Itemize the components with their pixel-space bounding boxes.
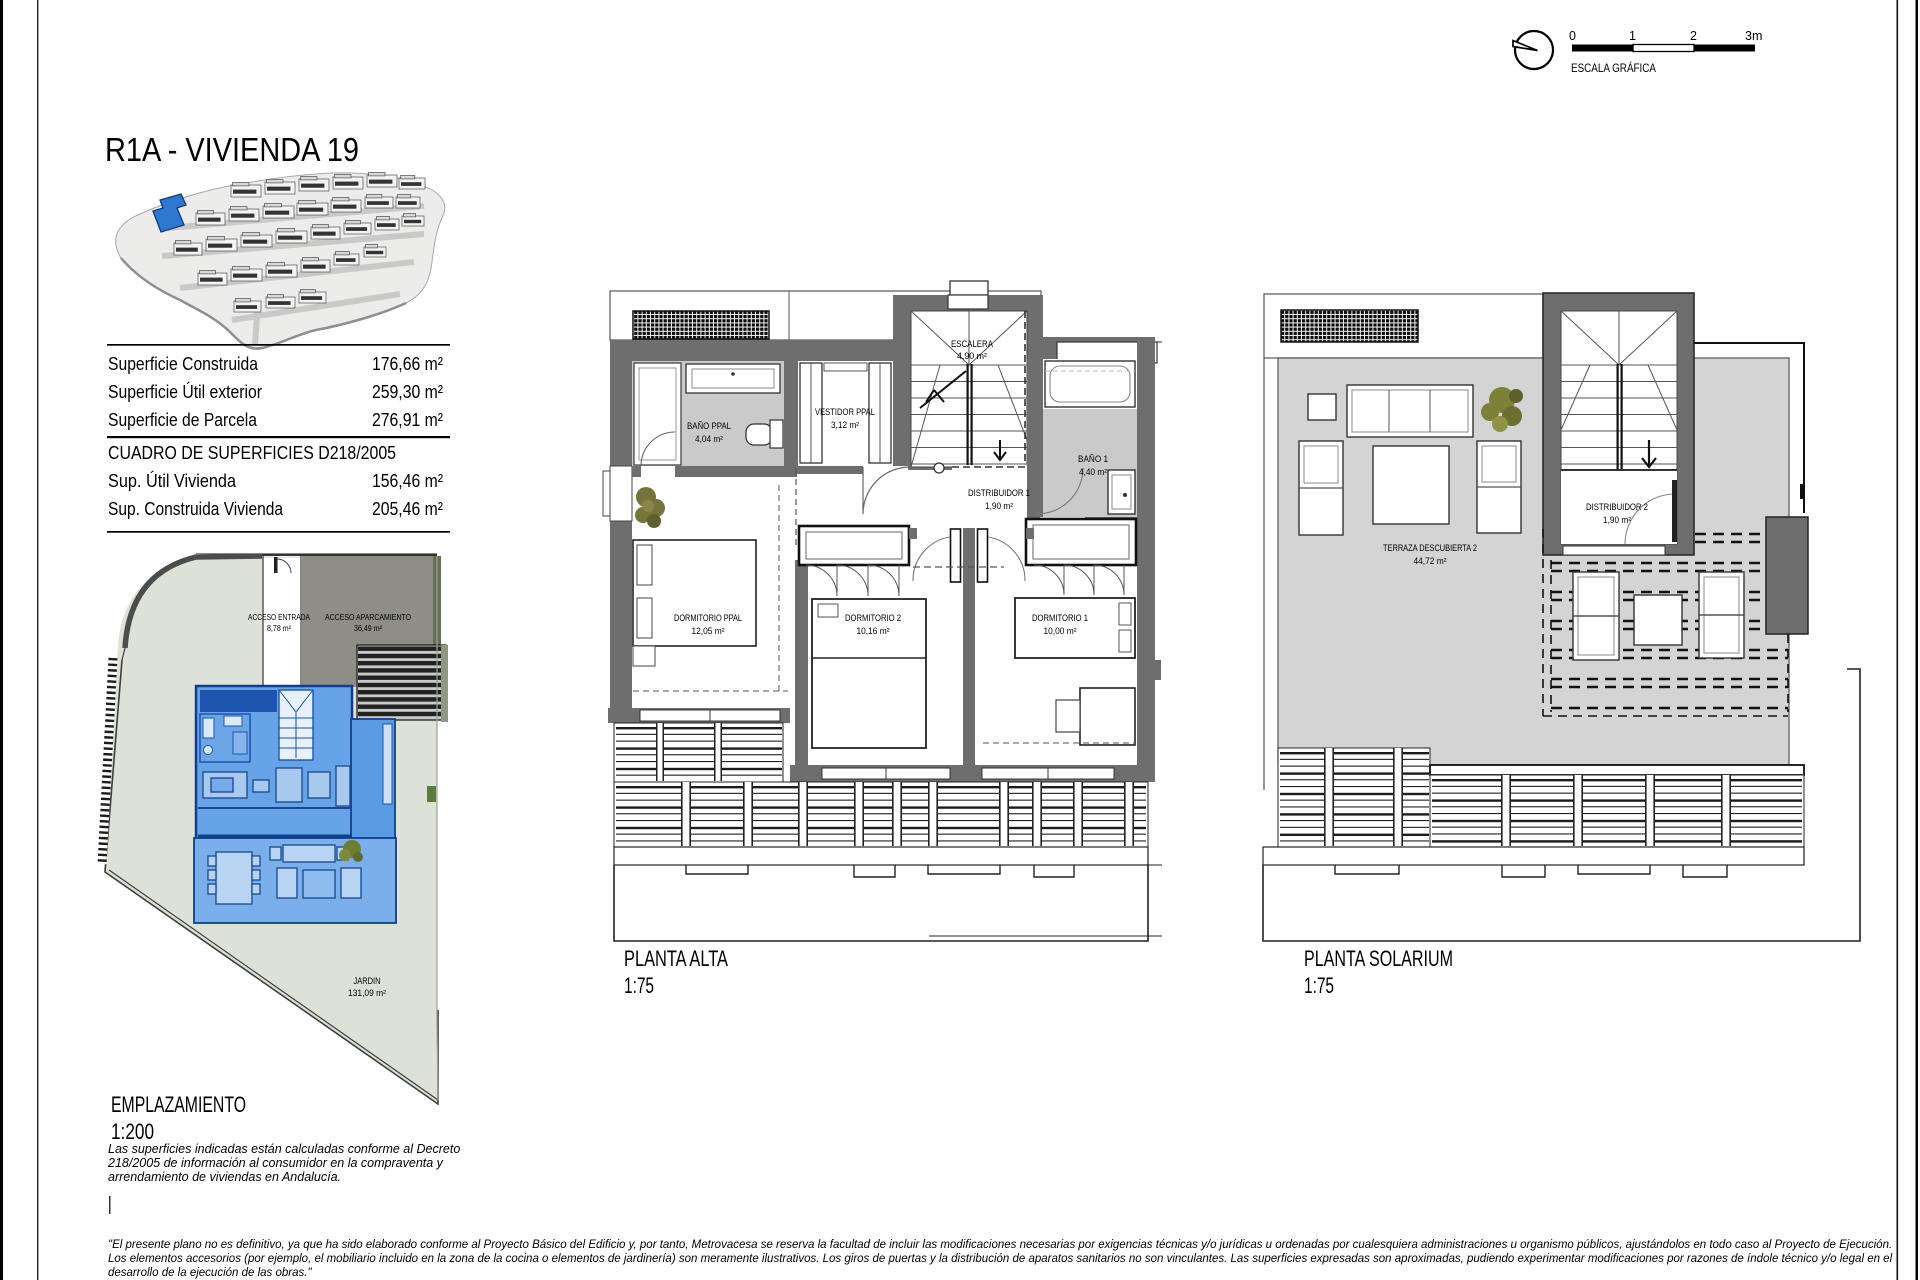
- svg-text:276,91 m²: 276,91 m²: [372, 409, 443, 430]
- svg-text:10,00 m²: 10,00 m²: [1044, 626, 1077, 636]
- svg-text:156,46 m²: 156,46 m²: [372, 470, 443, 491]
- svg-text:JARDIN: JARDIN: [354, 976, 381, 986]
- svg-text:4,04 m²: 4,04 m²: [695, 434, 723, 444]
- svg-text:ACCESO APARCAMIENTO: ACCESO APARCAMIENTO: [325, 613, 411, 622]
- svg-text:1,90 m²: 1,90 m²: [985, 501, 1013, 511]
- svg-text:CUADRO DE SUPERFICIES D218/200: CUADRO DE SUPERFICIES D218/2005: [108, 442, 396, 463]
- svg-text:Sup. Útil Vivienda: Sup. Útil Vivienda: [108, 470, 237, 491]
- svg-text:PLANTA ALTA: PLANTA ALTA: [624, 946, 728, 971]
- svg-text:2: 2: [1690, 29, 1697, 43]
- svg-text:ACCESO ENTRADA: ACCESO ENTRADA: [248, 613, 311, 622]
- svg-text:36,49 m²: 36,49 m²: [354, 624, 382, 633]
- svg-text:ESCALA GRÁFICA: ESCALA GRÁFICA: [1571, 62, 1656, 75]
- svg-text:0: 0: [1569, 29, 1576, 43]
- svg-text:44,72 m²: 44,72 m²: [1414, 556, 1447, 566]
- svg-text:R1A - VIVIENDA 19: R1A - VIVIENDA 19: [105, 132, 359, 169]
- svg-text:8,78 m²: 8,78 m²: [267, 624, 291, 633]
- svg-text:PLANTA SOLARIUM: PLANTA SOLARIUM: [1304, 946, 1453, 971]
- svg-text:1:75: 1:75: [1304, 973, 1334, 998]
- svg-text:EMPLAZAMIENTO: EMPLAZAMIENTO: [111, 1092, 246, 1117]
- svg-text:DORMITORIO 2: DORMITORIO 2: [845, 613, 901, 623]
- svg-text:BAÑO PPAL: BAÑO PPAL: [687, 421, 731, 431]
- svg-text:Superficie Útil exterior: Superficie Útil exterior: [108, 381, 262, 402]
- svg-text:4,90 m²: 4,90 m²: [957, 351, 987, 361]
- svg-text:DISTRIBUIDOR 1: DISTRIBUIDOR 1: [968, 488, 1030, 498]
- svg-text:1:200: 1:200: [111, 1119, 154, 1144]
- svg-text:176,66 m²: 176,66 m²: [372, 353, 443, 374]
- svg-text:1,90 m²: 1,90 m²: [1603, 515, 1631, 525]
- svg-text:3,12 m²: 3,12 m²: [831, 420, 859, 430]
- svg-text:1: 1: [1629, 29, 1636, 43]
- svg-text:TERRAZA DESCUBIERTA 2: TERRAZA DESCUBIERTA 2: [1383, 543, 1477, 553]
- svg-text:1:75: 1:75: [624, 973, 654, 998]
- svg-text:DISTRIBUIDOR 2: DISTRIBUIDOR 2: [1586, 502, 1648, 512]
- svg-text:218/2005 de información al con: 218/2005 de información al consumidor en…: [107, 1156, 444, 1170]
- svg-text:desarrollo de la ejecución de: desarrollo de la ejecución de las obras.…: [108, 1267, 312, 1279]
- svg-text:4,40 m²: 4,40 m²: [1079, 467, 1107, 477]
- svg-text:12,05 m²: 12,05 m²: [692, 626, 725, 636]
- svg-text:VESTIDOR PPAL: VESTIDOR PPAL: [815, 407, 875, 417]
- svg-text:"El presente plano no es defin: "El presente plano no es definitivo, ya …: [108, 1239, 1892, 1251]
- svg-text:Las superficies indicadas está: Las superficies indicadas están calculad…: [108, 1142, 460, 1156]
- svg-text:205,46 m²: 205,46 m²: [372, 498, 443, 519]
- svg-text:Sup. Construida Vivienda: Sup. Construida Vivienda: [108, 498, 284, 519]
- svg-text:ESCALERA: ESCALERA: [951, 339, 993, 349]
- svg-text:DORMITORIO PPAL: DORMITORIO PPAL: [674, 613, 742, 623]
- svg-text:Superficie de Parcela: Superficie de Parcela: [108, 409, 258, 430]
- svg-text:259,30 m²: 259,30 m²: [372, 381, 443, 402]
- svg-text:Superficie Construida: Superficie Construida: [108, 353, 259, 374]
- svg-text:3m: 3m: [1745, 29, 1762, 43]
- svg-text:arrendamiento de viviendas en: arrendamiento de viviendas en Andalucía.: [108, 1170, 341, 1184]
- svg-text:BAÑO 1: BAÑO 1: [1078, 454, 1108, 464]
- svg-text:131,09 m²: 131,09 m²: [348, 988, 386, 998]
- svg-text:DORMITORIO 1: DORMITORIO 1: [1032, 613, 1088, 623]
- svg-text:10,16 m²: 10,16 m²: [857, 626, 890, 636]
- svg-text:Los elementos accesorios (por: Los elementos accesorios (por ejemplo, e…: [108, 1253, 1893, 1265]
